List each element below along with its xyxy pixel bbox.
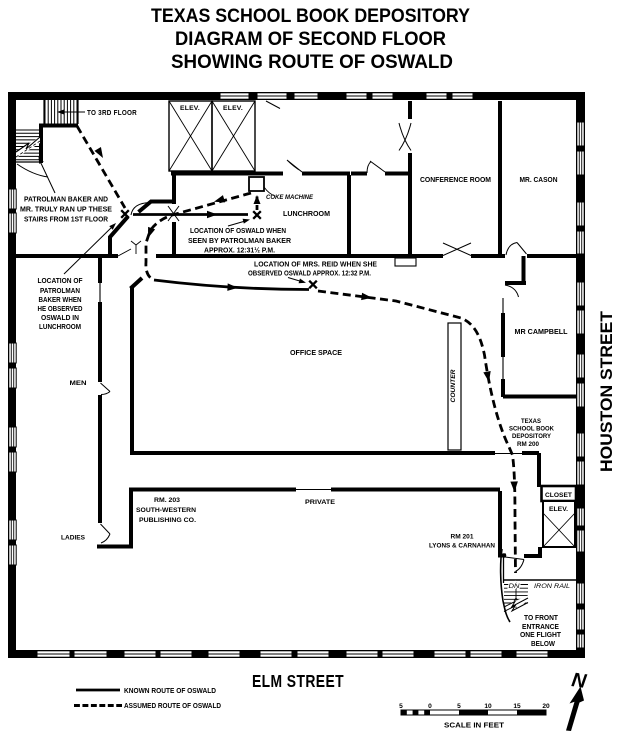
svg-text:PUBLISHING CO.: PUBLISHING CO. [139, 517, 196, 524]
svg-text:COKE MACHINE: COKE MACHINE [266, 195, 314, 201]
svg-text:CLOSET: CLOSET [545, 492, 573, 499]
svg-text:DN: DN [509, 583, 520, 590]
svg-text:TO FRONT: TO FRONT [524, 613, 559, 622]
svg-text:SCALE IN FEET: SCALE IN FEET [444, 723, 505, 730]
svg-text:SCHOOL BOOK: SCHOOL BOOK [509, 426, 554, 433]
svg-text:SOUTH-WESTERN: SOUTH-WESTERN [136, 507, 196, 514]
svg-text:SEEN BY PATROLMAN BAKER: SEEN BY PATROLMAN BAKER [188, 236, 292, 245]
svg-text:TEXAS: TEXAS [521, 418, 541, 425]
svg-text:BELOW: BELOW [531, 639, 555, 648]
svg-text:RM. 203: RM. 203 [154, 497, 180, 504]
svg-text:5: 5 [399, 703, 403, 710]
svg-text:OBSERVED OSWALD APPROX. 12:32: OBSERVED OSWALD APPROX. 12:32 P.M. [248, 269, 371, 278]
svg-text:SHOWING ROUTE OF OSWALD: SHOWING ROUTE OF OSWALD [171, 51, 453, 73]
svg-text:CONFERENCE ROOM: CONFERENCE ROOM [420, 175, 491, 184]
svg-text:COUNTER: COUNTER [450, 369, 457, 403]
svg-text:HE OBSERVED: HE OBSERVED [38, 304, 84, 313]
svg-text:HOUSTON STREET: HOUSTON STREET [598, 311, 616, 472]
svg-text:OSWALD IN: OSWALD IN [41, 313, 79, 322]
svg-text:15: 15 [513, 703, 521, 710]
svg-text:10: 10 [484, 703, 492, 710]
svg-text:LOCATION OF OSWALD WHEN: LOCATION OF OSWALD WHEN [190, 226, 286, 235]
svg-text:TO 3RD FLOOR: TO 3RD FLOOR [87, 108, 137, 117]
svg-text:LOCATION OF: LOCATION OF [38, 276, 83, 285]
svg-text:KNOWN ROUTE OF OSWALD: KNOWN ROUTE OF OSWALD [124, 688, 216, 695]
svg-text:PATROLMAN: PATROLMAN [40, 286, 80, 295]
svg-text:0: 0 [428, 703, 432, 710]
svg-text:MEN: MEN [70, 380, 87, 387]
svg-text:ELM STREET: ELM STREET [252, 671, 344, 691]
svg-text:ONE FLIGHT: ONE FLIGHT [520, 630, 562, 639]
svg-text:DEPOSITORY: DEPOSITORY [512, 433, 551, 440]
svg-text:RM 200: RM 200 [517, 441, 539, 448]
svg-text:MR. TRULY RAN UP THESE: MR. TRULY RAN UP THESE [20, 205, 112, 214]
svg-text:5: 5 [457, 703, 461, 710]
svg-text:ASSUMED ROUTE OF OSWALD: ASSUMED ROUTE OF OSWALD [124, 703, 221, 710]
svg-text:RM 201: RM 201 [451, 534, 474, 541]
svg-text:ELEV.: ELEV. [223, 105, 243, 112]
svg-text:TEXAS SCHOOL BOOK DEPOSITORY: TEXAS SCHOOL BOOK DEPOSITORY [151, 5, 470, 27]
svg-text:ELEV.: ELEV. [549, 506, 568, 513]
svg-text:LUNCHROOM: LUNCHROOM [283, 209, 330, 218]
svg-text:20: 20 [542, 703, 550, 710]
svg-text:IRON RAIL: IRON RAIL [534, 583, 570, 590]
svg-text:LUNCHROOM: LUNCHROOM [39, 322, 81, 331]
svg-text:LOCATION OF MRS. REID WHEN SHE: LOCATION OF MRS. REID WHEN SHE [254, 260, 377, 269]
svg-text:STAIRS FROM 1ST FLOOR: STAIRS FROM 1ST FLOOR [24, 215, 109, 224]
svg-text:LADIES: LADIES [61, 535, 86, 542]
svg-text:MR. CASON: MR. CASON [520, 175, 558, 184]
svg-text:MR CAMPBELL: MR CAMPBELL [515, 327, 568, 336]
svg-text:PATROLMAN BAKER AND: PATROLMAN BAKER AND [24, 195, 109, 204]
svg-text:OFFICE SPACE: OFFICE SPACE [290, 348, 342, 357]
svg-text:LYONS & CARNAHAN: LYONS & CARNAHAN [429, 543, 495, 550]
svg-text:DIAGRAM OF SECOND FLOOR: DIAGRAM OF SECOND FLOOR [175, 28, 446, 50]
svg-text:PRIVATE: PRIVATE [305, 499, 335, 506]
svg-text:BAKER WHEN: BAKER WHEN [39, 295, 82, 304]
svg-text:APPROX. 12:31½ P.M.: APPROX. 12:31½ P.M. [204, 246, 275, 255]
svg-text:ELEV.: ELEV. [180, 105, 200, 112]
